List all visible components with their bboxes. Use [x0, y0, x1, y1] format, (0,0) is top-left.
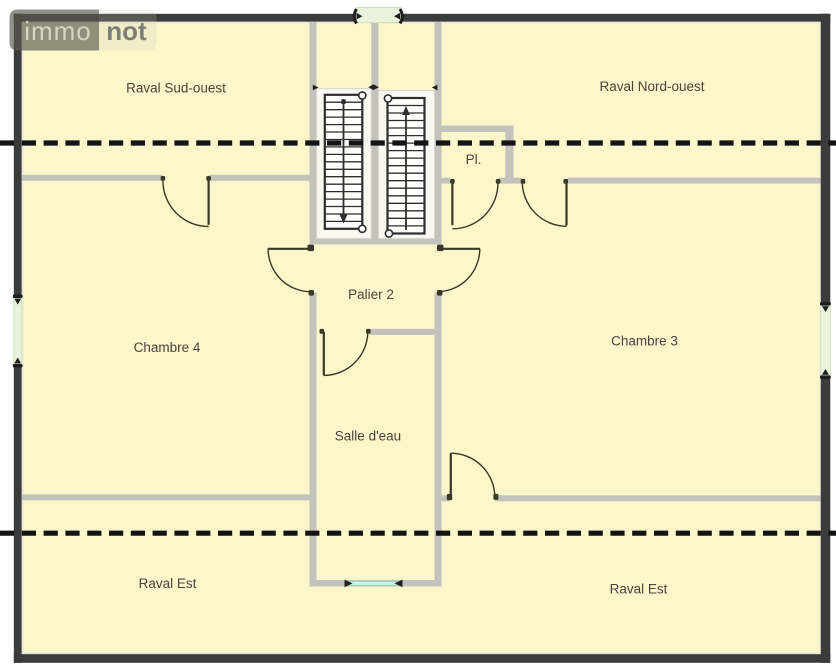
svg-text:Raval Est: Raval Est — [139, 576, 197, 591]
svg-text:Pl.: Pl. — [466, 152, 482, 167]
svg-text:not: not — [106, 16, 147, 46]
svg-text:Palier 2: Palier 2 — [348, 287, 394, 302]
svg-text:Raval Nord-ouest: Raval Nord-ouest — [599, 79, 704, 94]
svg-text:Raval Est: Raval Est — [610, 582, 668, 597]
svg-text:Salle d'eau: Salle d'eau — [335, 429, 401, 444]
svg-text:immo: immo — [24, 16, 92, 46]
svg-text:Chambre 3: Chambre 3 — [611, 334, 678, 349]
svg-text:Raval Sud-ouest: Raval Sud-ouest — [126, 81, 226, 96]
svg-text:Chambre 4: Chambre 4 — [134, 340, 201, 355]
